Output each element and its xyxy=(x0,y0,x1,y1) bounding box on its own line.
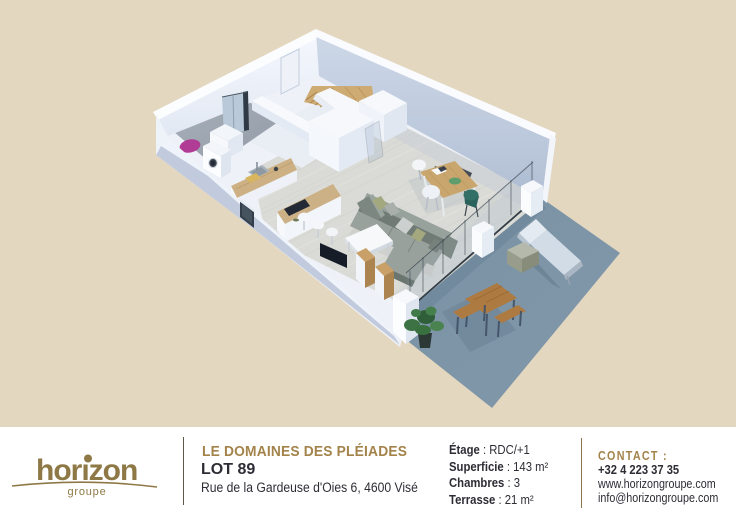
svg-text:groupe: groupe xyxy=(67,486,106,498)
